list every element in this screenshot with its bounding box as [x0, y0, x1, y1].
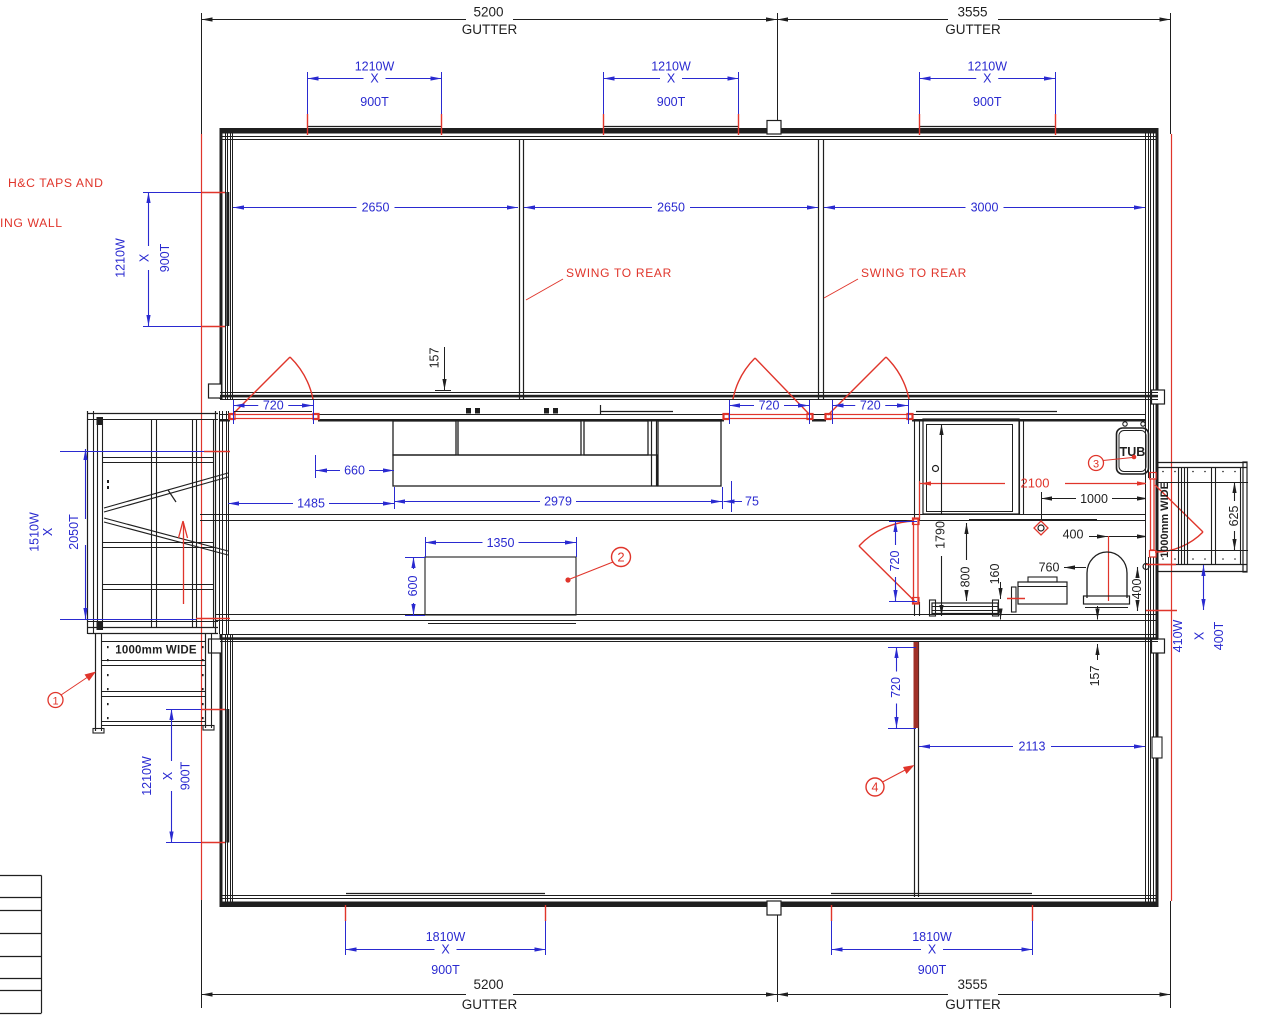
svg-text:660: 660 [344, 464, 365, 478]
svg-text:1350: 1350 [487, 536, 515, 550]
svg-text:400T: 400T [1212, 621, 1226, 650]
svg-text:160: 160 [988, 564, 1002, 585]
svg-text:H&C TAPS AND: H&C TAPS AND [8, 176, 103, 190]
svg-text:X: X [370, 72, 379, 86]
svg-text:5200: 5200 [473, 977, 503, 992]
svg-text:2979: 2979 [544, 495, 572, 509]
svg-text:400: 400 [1063, 528, 1084, 542]
svg-text:900T: 900T [158, 243, 172, 272]
svg-text:2050T: 2050T [67, 514, 81, 550]
svg-text:720: 720 [888, 551, 902, 572]
svg-text:1210W: 1210W [114, 238, 128, 278]
svg-text:600: 600 [406, 576, 420, 597]
svg-text:X: X [138, 253, 152, 262]
svg-text:X: X [161, 771, 175, 780]
svg-text:SWING TO REAR: SWING TO REAR [861, 266, 967, 280]
svg-text:GUTTER: GUTTER [462, 22, 518, 37]
svg-text:GUTTER: GUTTER [462, 997, 518, 1012]
svg-text:X: X [41, 527, 55, 536]
svg-text:X: X [983, 72, 992, 86]
svg-text:900T: 900T [179, 761, 193, 790]
svg-text:1485: 1485 [297, 497, 325, 511]
svg-text:X: X [667, 72, 676, 86]
svg-text:1000: 1000 [1080, 492, 1108, 506]
svg-text:720: 720 [759, 399, 780, 413]
svg-text:900T: 900T [973, 95, 1002, 109]
svg-text:4: 4 [872, 781, 879, 795]
svg-text:5200: 5200 [473, 5, 503, 20]
svg-text:900T: 900T [918, 963, 947, 977]
svg-text:800: 800 [959, 567, 973, 588]
svg-text:X: X [928, 943, 937, 957]
svg-text:410W: 410W [1171, 619, 1185, 652]
svg-text:3555: 3555 [957, 977, 987, 992]
svg-text:157: 157 [1088, 666, 1102, 687]
svg-text:1210W: 1210W [140, 756, 154, 796]
svg-text:X: X [441, 943, 450, 957]
svg-text:2100: 2100 [1021, 476, 1050, 491]
svg-text:ING WALL: ING WALL [0, 216, 63, 230]
svg-text:3: 3 [1093, 459, 1099, 471]
svg-text:900T: 900T [657, 95, 686, 109]
svg-text:3000: 3000 [971, 201, 999, 215]
svg-text:1000mm WIDE: 1000mm WIDE [115, 645, 197, 657]
svg-text:1510W: 1510W [28, 512, 42, 552]
svg-text:75: 75 [745, 495, 759, 509]
svg-text:SWING TO REAR: SWING TO REAR [566, 266, 672, 280]
svg-text:720: 720 [889, 677, 903, 698]
svg-text:2650: 2650 [657, 201, 685, 215]
svg-text:900T: 900T [431, 963, 460, 977]
svg-text:900T: 900T [360, 95, 389, 109]
svg-text:1000mm WIDE: 1000mm WIDE [1159, 482, 1171, 558]
svg-text:400: 400 [1130, 579, 1144, 600]
svg-text:1: 1 [52, 696, 58, 708]
svg-text:760: 760 [1039, 561, 1060, 575]
svg-text:2: 2 [617, 550, 624, 565]
svg-text:2113: 2113 [1019, 740, 1046, 754]
svg-text:625: 625 [1227, 506, 1241, 527]
svg-text:GUTTER: GUTTER [945, 22, 1001, 37]
svg-text:1790: 1790 [934, 521, 948, 549]
svg-text:720: 720 [263, 399, 284, 413]
svg-text:X: X [1193, 631, 1207, 640]
svg-text:720: 720 [860, 399, 881, 413]
svg-text:3555: 3555 [957, 5, 987, 20]
svg-text:157: 157 [428, 348, 442, 369]
svg-text:GUTTER: GUTTER [945, 997, 1001, 1012]
svg-text:2650: 2650 [362, 201, 390, 215]
